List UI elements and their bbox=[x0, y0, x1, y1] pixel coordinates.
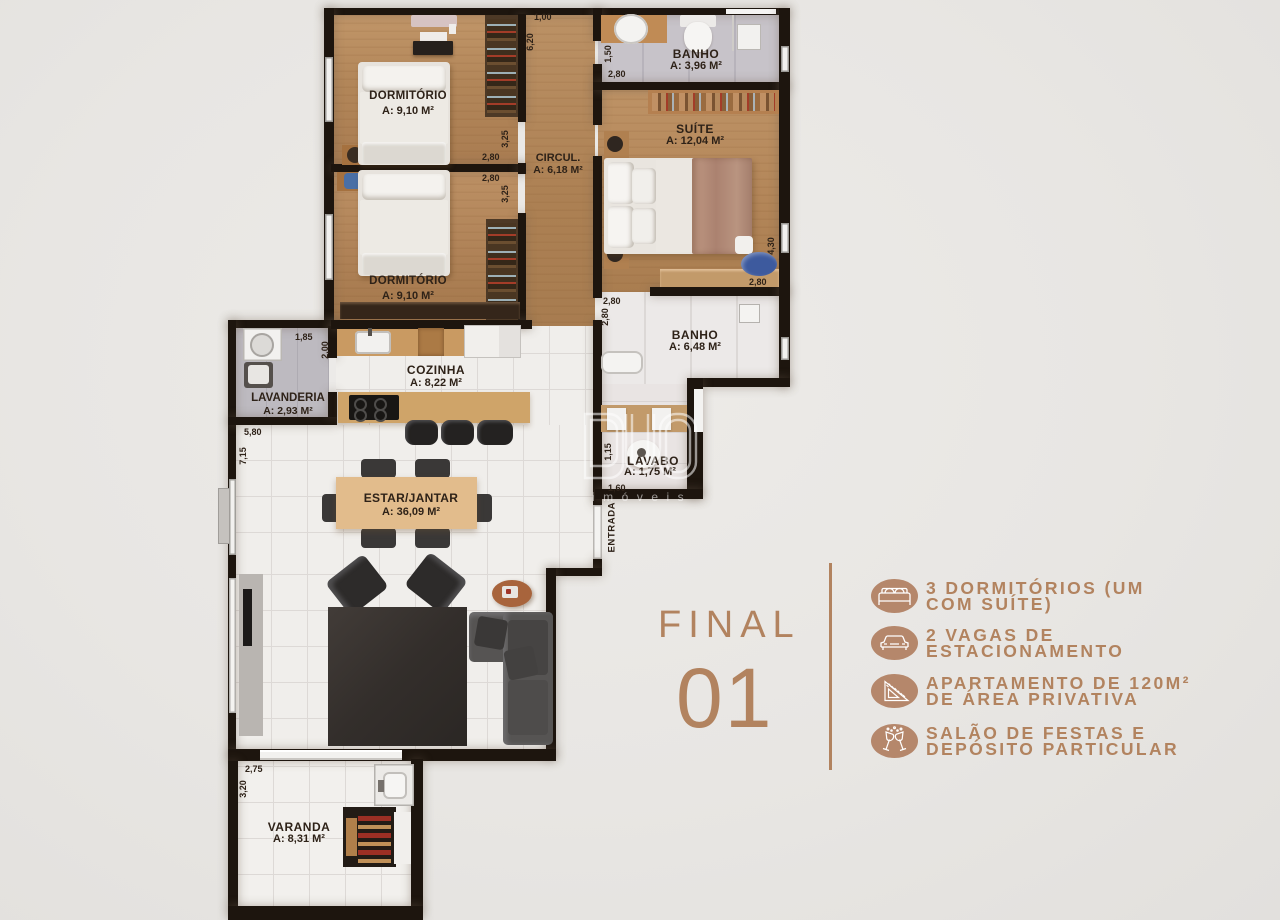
svg-text:imóveis: imóveis bbox=[592, 490, 692, 504]
